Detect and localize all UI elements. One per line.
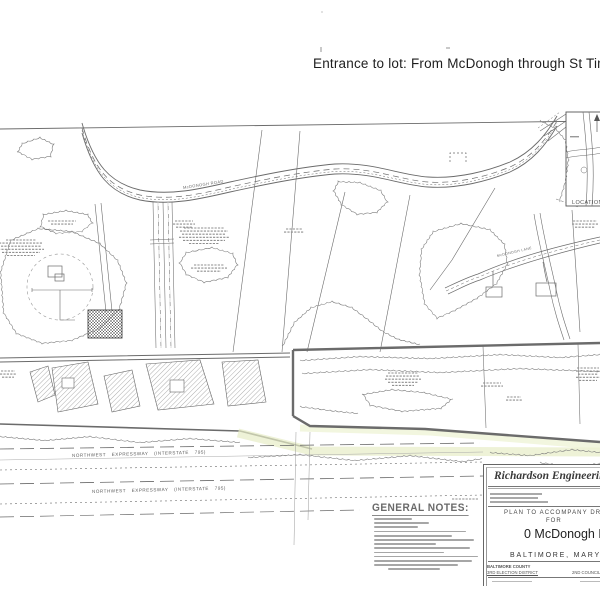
building-footprints [48, 153, 556, 297]
general-notes-lines [374, 518, 484, 572]
location-map-inset [538, 112, 600, 206]
stray-mark [321, 11, 323, 13]
address-line-illegible [490, 501, 548, 503]
firm-name: Richardson Engineering [494, 470, 600, 482]
stray-mark [320, 47, 322, 52]
plan-title-line: PLAN TO ACCOMPANY DRC [504, 510, 600, 516]
side-lane-road [445, 213, 600, 340]
council-line: 2ND COUNCIL [572, 570, 600, 575]
district-line: 3RD ELECTION DISTRICT [487, 570, 538, 575]
rule [488, 561, 600, 562]
title-block: Richardson Engineering PLAN TO ACCOMPANY… [483, 464, 600, 586]
city-state: BALTIMORE, MARYLAND [510, 552, 600, 559]
general-notes-heading: GENERAL NOTES: [372, 502, 469, 516]
stray-mark [446, 47, 450, 49]
rule [488, 488, 600, 489]
rule [488, 577, 600, 578]
dimension-lines [27, 254, 93, 320]
address-line-illegible [490, 493, 542, 495]
address-line-illegible [490, 497, 538, 499]
rule [488, 506, 600, 507]
for-line: FOR [546, 518, 562, 524]
illegible-footer [492, 581, 532, 582]
scanned-site-plan-page: Entrance to lot: From McDonogh through S… [0, 0, 600, 600]
rule [488, 486, 600, 487]
hatched-parcels [30, 360, 266, 412]
typed-annotation: Entrance to lot: From McDonogh through S… [313, 56, 600, 71]
main-road [82, 116, 557, 202]
existing-building-hatched [88, 310, 122, 338]
parcel-boundary-lines [233, 130, 580, 428]
county-line: BALTIMORE COUNTY [487, 564, 530, 569]
illegible-footer [580, 581, 600, 582]
location-map-label: LOCATION MAP [572, 200, 600, 206]
project-address: 0 McDonogh Rd [524, 527, 600, 541]
sheet-top-border [0, 121, 600, 129]
